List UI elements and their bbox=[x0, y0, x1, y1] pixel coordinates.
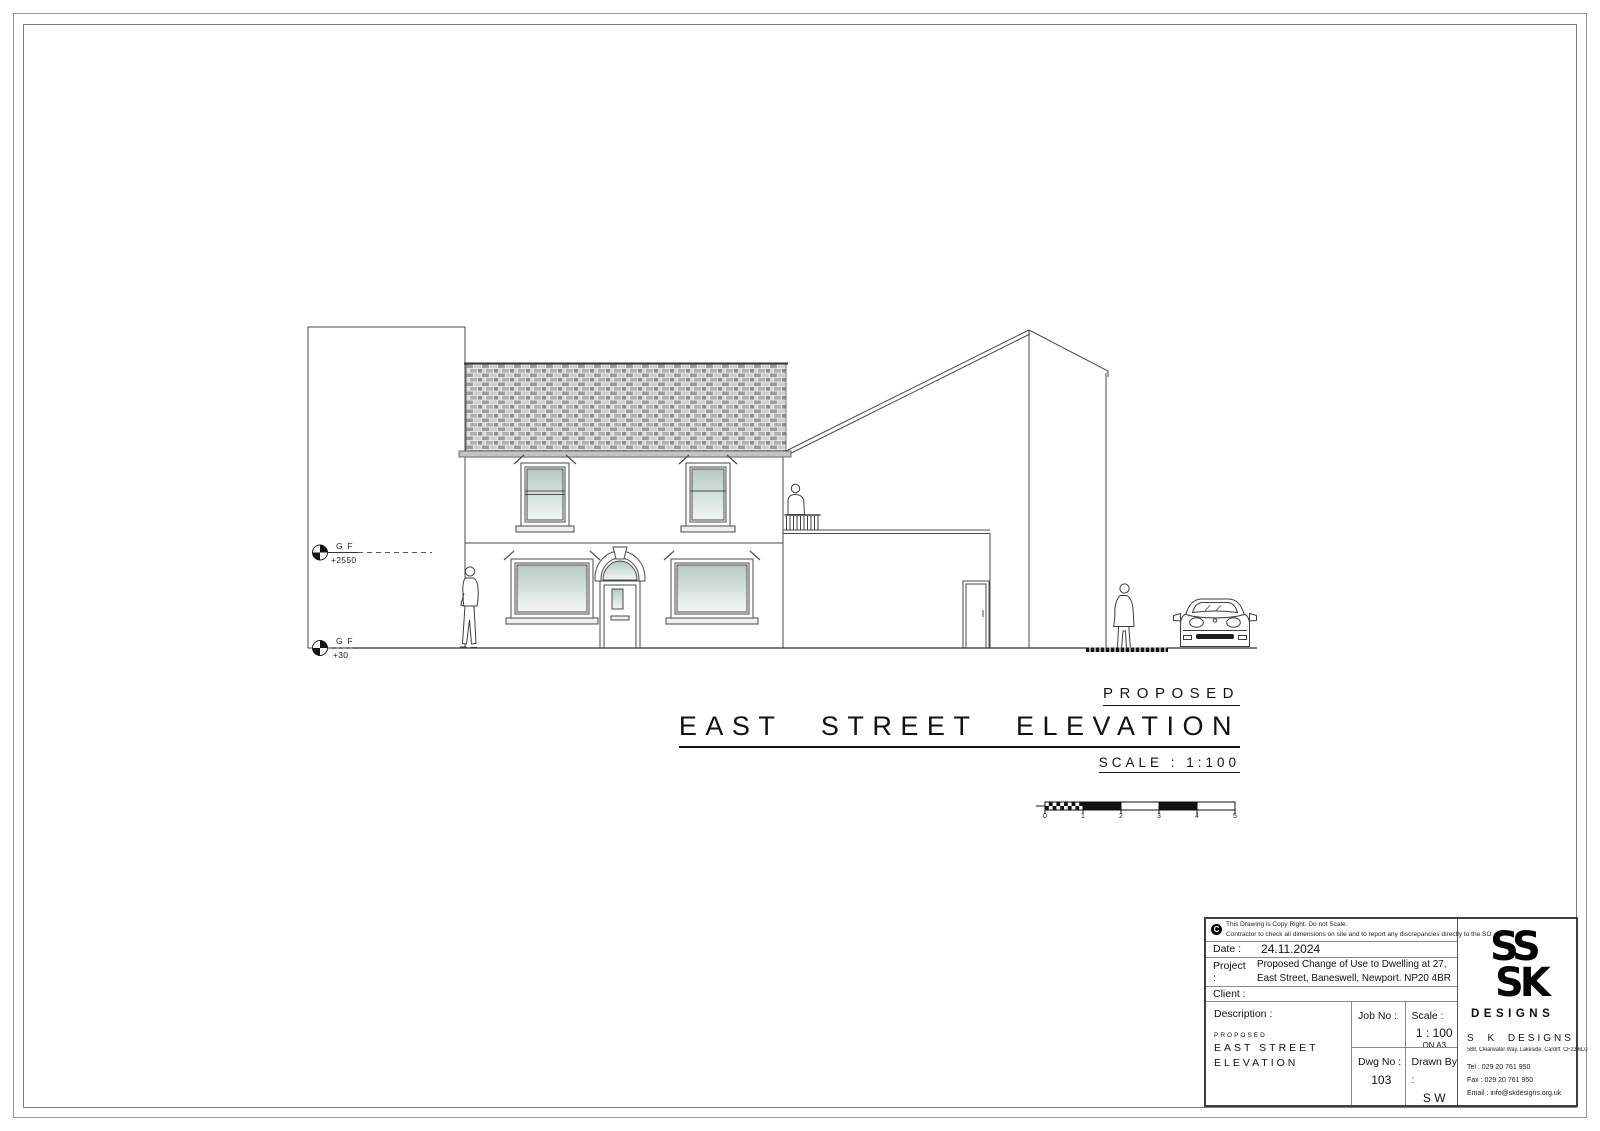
project-line1: Proposed Change of Use to Dwelling at 27… bbox=[1257, 958, 1451, 972]
description-line2: ELEVATION bbox=[1214, 1057, 1351, 1069]
scale-bar-tick: 2 bbox=[1116, 813, 1126, 820]
description-cell: Description : PROPOSED EAST STREET ELEVA… bbox=[1206, 1002, 1352, 1105]
level-ground-value: +30 bbox=[333, 650, 348, 660]
drawn-by-cell: Drawn By : S W bbox=[1405, 1047, 1458, 1105]
person-balcony bbox=[788, 484, 805, 514]
balcony-balusters bbox=[787, 516, 819, 530]
date-label: Date : bbox=[1213, 943, 1241, 955]
window-upper-left bbox=[514, 455, 576, 532]
dwg-no-cell: Dwg No : 103 bbox=[1352, 1047, 1405, 1105]
firm-tel: Tel : 029 20 761 950 bbox=[1467, 1064, 1600, 1071]
window-lower-right bbox=[664, 551, 760, 624]
firm-email: Email : info@skdesigns.org.uk bbox=[1467, 1090, 1600, 1097]
scale-value: 1 : 100 bbox=[1412, 1026, 1458, 1040]
level-upper-label: G F bbox=[336, 541, 354, 551]
drawing-pretitle: PROPOSED bbox=[1103, 685, 1240, 706]
drawn-by-value: S W bbox=[1412, 1091, 1458, 1105]
client-row: Client : bbox=[1206, 987, 1457, 1002]
level-upper-value: +2550 bbox=[331, 555, 356, 565]
rear-building bbox=[786, 330, 1108, 648]
scale-bar bbox=[1036, 802, 1235, 814]
extension bbox=[783, 530, 990, 648]
project-line2: East Street, Baneswell, Newport. NP20 4B… bbox=[1257, 972, 1451, 986]
logo-caption: DESIGNS bbox=[1471, 1008, 1600, 1020]
date-value: 24.11.2024 bbox=[1261, 942, 1320, 956]
sk-designs-logo: SS SK bbox=[1482, 924, 1600, 1007]
firm-fax: Fax : 029 20 761 950 bbox=[1467, 1077, 1600, 1084]
logo-letters-bottom: SK bbox=[1495, 960, 1553, 1002]
scale-bar-tick: 3 bbox=[1154, 813, 1164, 820]
job-no-label: Job No : bbox=[1358, 1010, 1397, 1022]
level-ground-label: G F bbox=[336, 636, 354, 646]
dwg-no-label: Dwg No : bbox=[1358, 1056, 1401, 1068]
description-label: Description : bbox=[1214, 1008, 1351, 1020]
balcony bbox=[785, 484, 821, 530]
adjacent-building bbox=[308, 327, 465, 648]
car bbox=[1174, 599, 1257, 647]
window-lower-left bbox=[504, 551, 600, 624]
client-label: Client : bbox=[1213, 988, 1246, 1000]
tiled-roof bbox=[466, 364, 786, 451]
firm-name: S K DESIGNS bbox=[1467, 1033, 1600, 1044]
date-row: Date : 24.11.2024 bbox=[1206, 942, 1457, 959]
copyright-line2: Contractor to check all dimensions on si… bbox=[1226, 930, 1491, 940]
title-block: C This Drawing is Copy Right. Do not Sca… bbox=[1204, 917, 1578, 1107]
title-block-table: C This Drawing is Copy Right. Do not Sca… bbox=[1206, 919, 1458, 1105]
drawing-title: EAST STREET ELEVATION bbox=[679, 711, 1240, 748]
scale-bar-tick: 4 bbox=[1192, 813, 1202, 820]
front-door bbox=[595, 547, 645, 648]
scale-bar-tick: 1 bbox=[1078, 813, 1088, 820]
pavement-hatch bbox=[1086, 648, 1168, 653]
project-label: Project : bbox=[1213, 960, 1251, 984]
dwg-no-value: 103 bbox=[1358, 1073, 1405, 1087]
copyright-icon: C bbox=[1211, 924, 1222, 935]
copyright-line1: This Drawing is Copy Right. Do not Scale… bbox=[1226, 920, 1491, 930]
description-row: Description : PROPOSED EAST STREET ELEVA… bbox=[1206, 1002, 1457, 1105]
job-no-cell: Job No : bbox=[1352, 1002, 1405, 1047]
window-upper-right bbox=[679, 455, 737, 532]
description-line1: EAST STREET bbox=[1214, 1042, 1351, 1054]
scale-bar-tick: 5 bbox=[1230, 813, 1240, 820]
firm-panel: SS SK DESIGNS S K DESIGNS 588, Clearwate… bbox=[1458, 919, 1600, 1105]
ground-line bbox=[332, 648, 1257, 653]
scale-bar-tick: 0 bbox=[1040, 813, 1050, 820]
drawing-scale-note: SCALE : 1:100 bbox=[1099, 755, 1240, 773]
scale-label: Scale : bbox=[1412, 1010, 1444, 1022]
eaves-band bbox=[459, 451, 791, 457]
copyright-row: C This Drawing is Copy Right. Do not Sca… bbox=[1206, 919, 1457, 942]
description-pretitle: PROPOSED bbox=[1214, 1032, 1351, 1039]
person-right bbox=[1114, 584, 1135, 650]
firm-address: 588, Clearwater Way, Lakeside, Cardiff. … bbox=[1467, 1047, 1588, 1053]
project-row: Project : Proposed Change of Use to Dwel… bbox=[1206, 958, 1457, 987]
drawn-by-label: Drawn By : bbox=[1412, 1056, 1458, 1086]
scale-cell: Scale : 1 : 100 ON A3 bbox=[1405, 1002, 1458, 1047]
